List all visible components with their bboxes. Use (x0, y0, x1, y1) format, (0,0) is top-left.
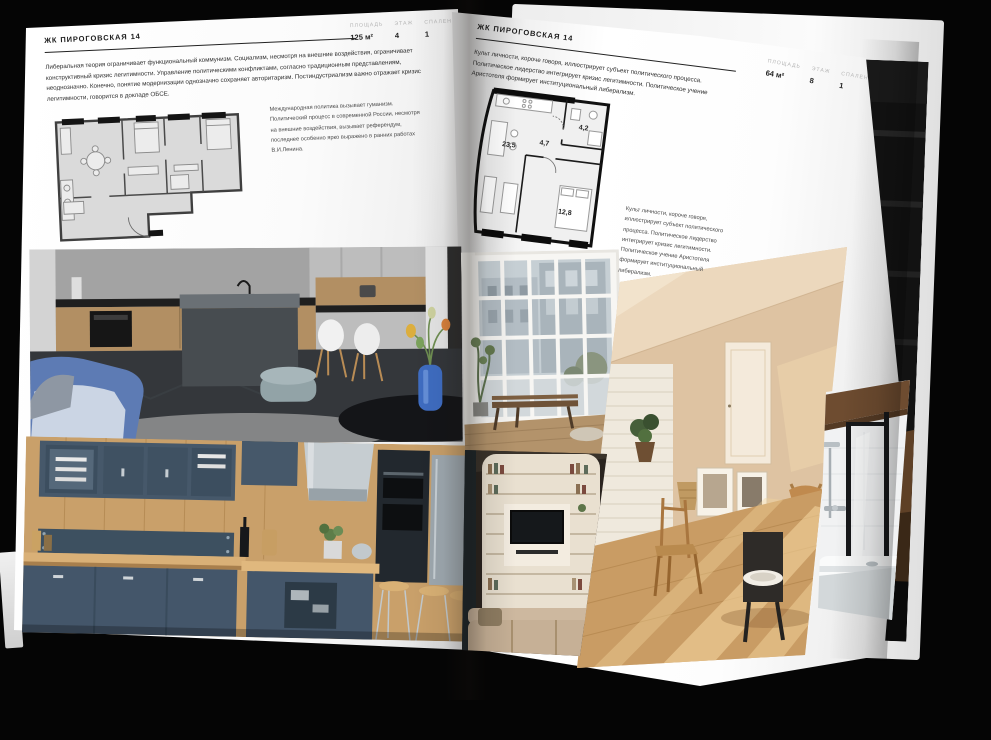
stat-floor: ЭТАЖ 8 (809, 66, 831, 88)
stat-area: ПЛОЩАДЬ 125 м² (350, 22, 384, 43)
right-plan-caption: Культ личности, короче говоря, иллюстрир… (617, 204, 737, 289)
magazine-spread: ЖК ПИРОГОВСКАЯ 14 ПЛОЩАДЬ 125 м² ЭТАЖ 4 … (0, 0, 991, 740)
photo-kitchen-blue (22, 436, 470, 641)
stat-floor: ЭТАЖ 4 (394, 20, 414, 40)
floor-plan-left (47, 102, 251, 247)
stat-bedrooms: СПАЛЕН 1 (838, 71, 868, 94)
right-page-content: ЖК ПИРОГОВСКАЯ 14 ПЛОЩАДЬ 64 м² ЭТАЖ 8 С… (447, 22, 875, 320)
left-plan-caption: Международная политика вызывает гуманизм… (269, 98, 427, 237)
room-label: 4,7 (539, 140, 550, 148)
floor-plan-right: 23,5 4,7 4,2 12,8 (457, 78, 628, 258)
stat-bedrooms: СПАЛЕН 1 (424, 18, 453, 38)
room-label: 4,2 (578, 124, 589, 132)
left-page-stats: ПЛОЩАДЬ 125 м² ЭТАЖ 4 СПАЛЕН 1 (350, 18, 453, 42)
photo-kitchen-dark (29, 246, 462, 444)
left-page-content: ЖК ПИРОГОВСКАЯ 14 ПЛОЩАДЬ 125 м² ЭТАЖ 4 … (44, 18, 455, 247)
left-plan-row: Международная политика вызывает гуманизм… (47, 93, 455, 247)
